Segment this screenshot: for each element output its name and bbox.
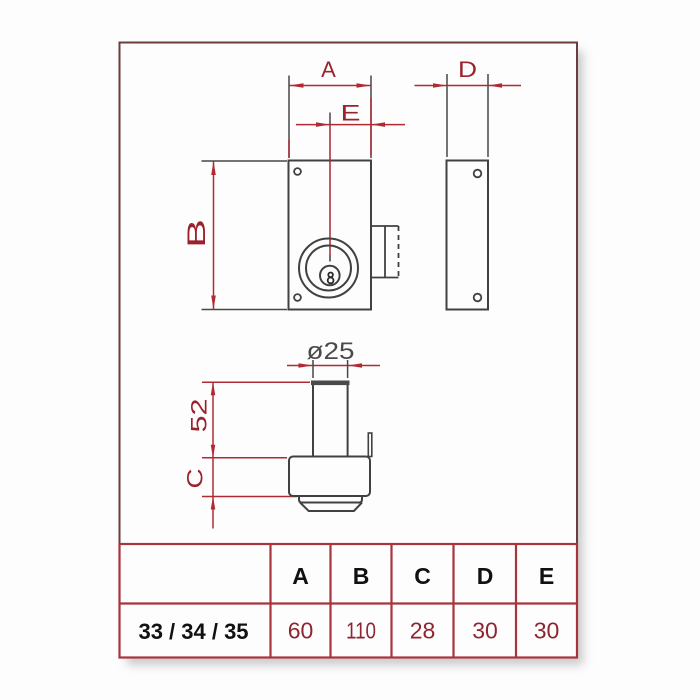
svg-text:C: C [414,563,431,589]
svg-text:B: B [353,563,370,589]
svg-text:A: A [321,57,336,82]
svg-text:110: 110 [346,618,376,644]
svg-text:60: 60 [288,618,314,644]
svg-text:D: D [458,57,477,82]
svg-text:B: B [183,219,211,248]
svg-text:30: 30 [472,618,498,644]
svg-text:33 / 34 / 35: 33 / 34 / 35 [138,619,248,644]
svg-text:30: 30 [534,618,560,644]
svg-text:A: A [292,563,309,589]
svg-text:28: 28 [410,618,436,644]
svg-text:52: 52 [187,399,212,433]
svg-text:E: E [341,101,361,126]
svg-text:E: E [539,563,554,589]
svg-text:C: C [183,468,208,488]
svg-text:D: D [477,563,494,589]
